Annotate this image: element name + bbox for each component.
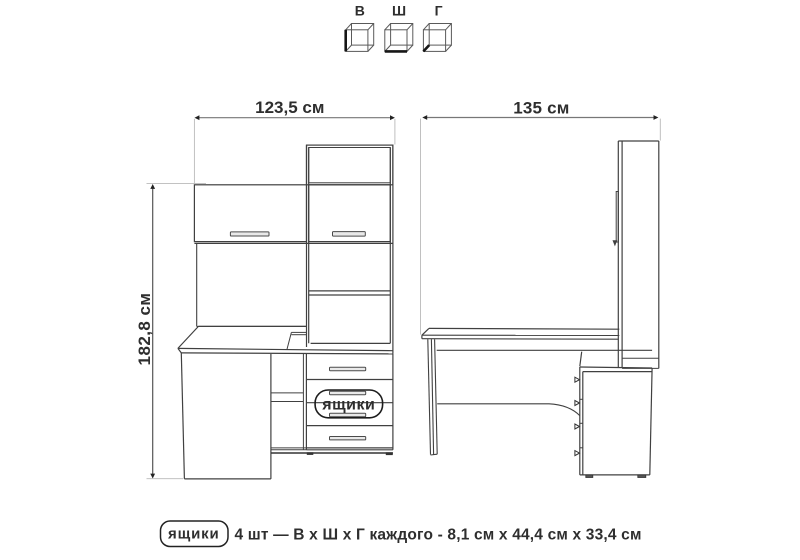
svg-text:4 шт — В х Ш х Г каждого - 8,1: 4 шт — В х Ш х Г каждого - 8,1 см х 44,4…: [235, 527, 642, 544]
svg-text:123,5 см: 123,5 см: [255, 98, 324, 117]
svg-text:182,8 см: 182,8 см: [135, 293, 154, 366]
svg-text:Ш: Ш: [392, 3, 406, 19]
svg-text:Г: Г: [435, 3, 443, 19]
svg-text:135 см: 135 см: [513, 98, 569, 117]
svg-text:В: В: [355, 3, 365, 19]
svg-text:ящики: ящики: [168, 525, 220, 542]
svg-text:ящики: ящики: [321, 396, 375, 413]
